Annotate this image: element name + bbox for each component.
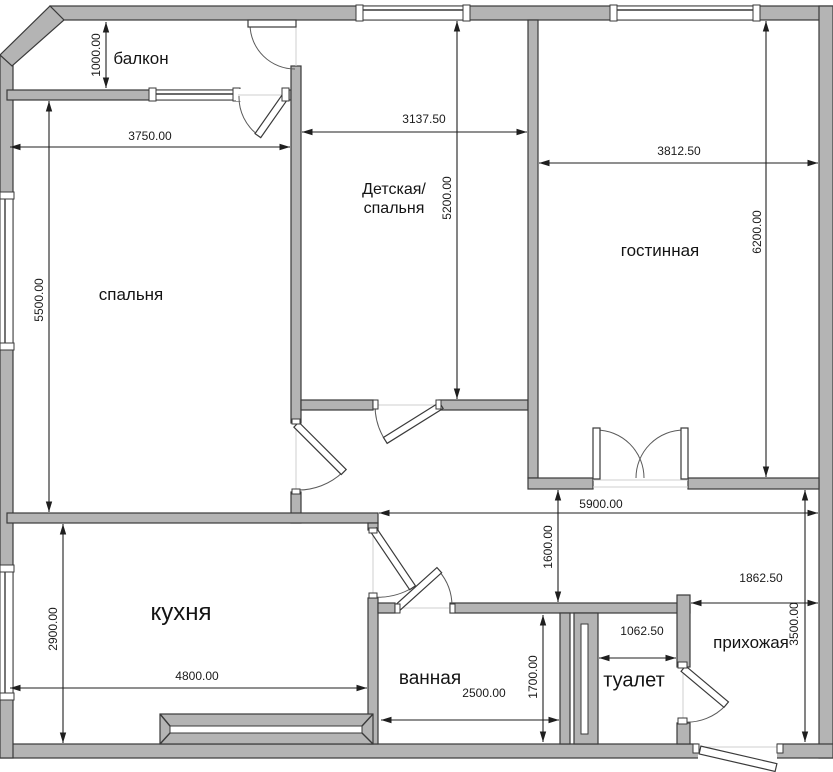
dim-label-living-width: 3812.50 — [657, 144, 700, 158]
door-bedroom-balcony — [236, 88, 289, 138]
wall-living-left — [528, 20, 538, 478]
room-label-hallway: прихожая — [713, 633, 789, 653]
dim-label-hallway-height: 3500.00 — [787, 602, 801, 645]
wall-living-bottom-left — [528, 478, 593, 489]
door-nursery-balcony — [248, 20, 296, 69]
window-bedroom-left — [0, 192, 14, 350]
wall-bathroom-right — [560, 613, 570, 744]
wall-bedroom-kitchen — [7, 513, 378, 523]
dim-label-bedroom-height: 5500.00 — [32, 278, 46, 321]
dim-label-hallway-width: 1862.50 — [739, 571, 782, 585]
wall-living-bottom-right — [688, 478, 819, 489]
door-entrance — [693, 743, 783, 771]
dim-label-toilet-width: 1062.50 — [620, 624, 663, 638]
dim-label-corridor-width: 5900.00 — [579, 497, 622, 511]
window-kitchen-left — [0, 565, 14, 700]
dim-label-bathroom-height: 1700.00 — [526, 655, 540, 698]
dim-label-nursery-width: 3137.50 — [402, 112, 445, 126]
wall-outer-right — [819, 6, 833, 758]
floor-plan: балкон спальня Детская/ спальня гостинна… — [0, 0, 833, 772]
room-label-toilet: туалет — [603, 670, 665, 693]
dim-label-living-height: 6200.00 — [750, 210, 764, 253]
room-label-living: гостинная — [621, 241, 700, 261]
wall-nursery-left-upper — [291, 66, 301, 423]
window-balcony — [149, 88, 240, 101]
room-label-kitchen: кухня — [150, 599, 211, 627]
dim-label-corridor-height: 1600.00 — [541, 525, 555, 568]
room-label-bathroom: ванная — [399, 668, 461, 690]
dim-label-bedroom-width: 3750.00 — [128, 129, 171, 143]
wall-bathroom-top-right — [450, 603, 690, 613]
dim-label-nursery-height: 5200.00 — [440, 176, 454, 219]
dim-label-kitchen-height: 2900.00 — [46, 607, 60, 650]
wall-nursery-bottom-right — [439, 400, 528, 410]
door-living-double — [593, 428, 688, 487]
dim-label-balcony-depth: 1000.00 — [89, 33, 103, 76]
wall-outer-diagonal — [0, 6, 64, 66]
door-kitchen — [369, 528, 415, 598]
room-label-balcony: балкон — [113, 49, 168, 69]
door-bedroom — [292, 419, 346, 494]
room-label-nursery: Детская/ спальня — [362, 180, 426, 218]
door-toilet — [678, 662, 728, 724]
window-nursery-top — [356, 5, 470, 21]
wall-toilet-right-lower — [677, 723, 690, 744]
vent-shaft-slot — [581, 624, 588, 734]
dim-label-bathroom-width: 2500.00 — [462, 686, 505, 700]
door-nursery — [373, 400, 443, 443]
wall-bathroom-top-left — [378, 603, 395, 613]
dim-label-kitchen-width: 4800.00 — [175, 669, 218, 683]
kitchen-counter — [160, 714, 373, 744]
wall-nursery-bottom-left — [301, 400, 373, 410]
room-label-nursery-line2: спальня — [362, 199, 426, 218]
wall-toilet-right-upper — [677, 595, 690, 667]
room-label-bedroom: спальня — [99, 285, 164, 305]
window-living-top — [610, 5, 760, 21]
room-label-nursery-line1: Детская/ — [362, 180, 426, 199]
